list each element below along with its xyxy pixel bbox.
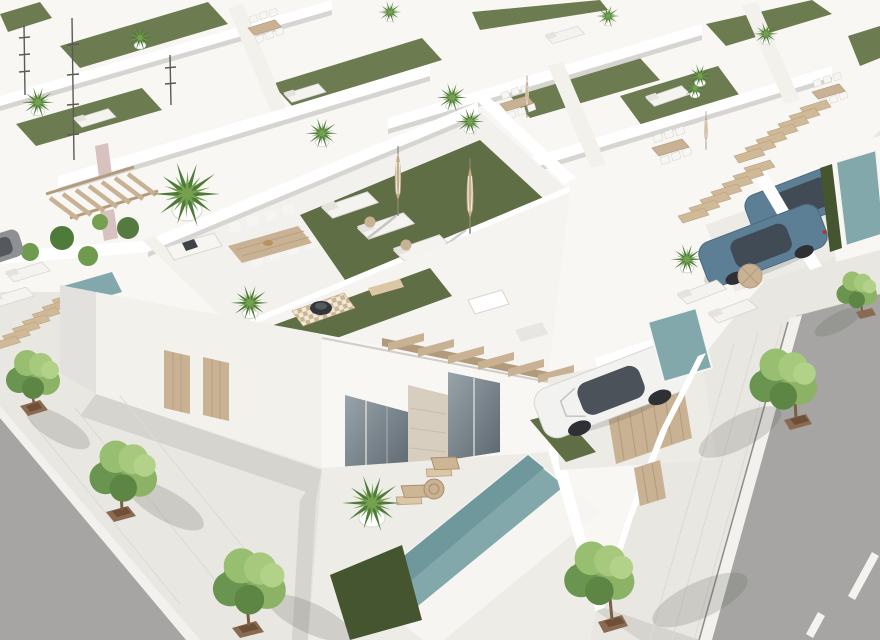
architectural-render: Aerial 3D rendering of a modern white vi… (0, 0, 880, 640)
side-table (401, 240, 412, 251)
fire-pit-rim (315, 303, 327, 310)
wooden-door-2 (203, 357, 229, 421)
wicker-coffee-table (424, 479, 444, 499)
render-viewport: Aerial 3D rendering of a modern white vi… (0, 0, 880, 640)
wooden-door-1 (164, 350, 190, 414)
front-yard (308, 444, 604, 640)
side-table (365, 217, 376, 228)
table-bowl (263, 240, 273, 246)
tree-trunk (610, 598, 612, 620)
